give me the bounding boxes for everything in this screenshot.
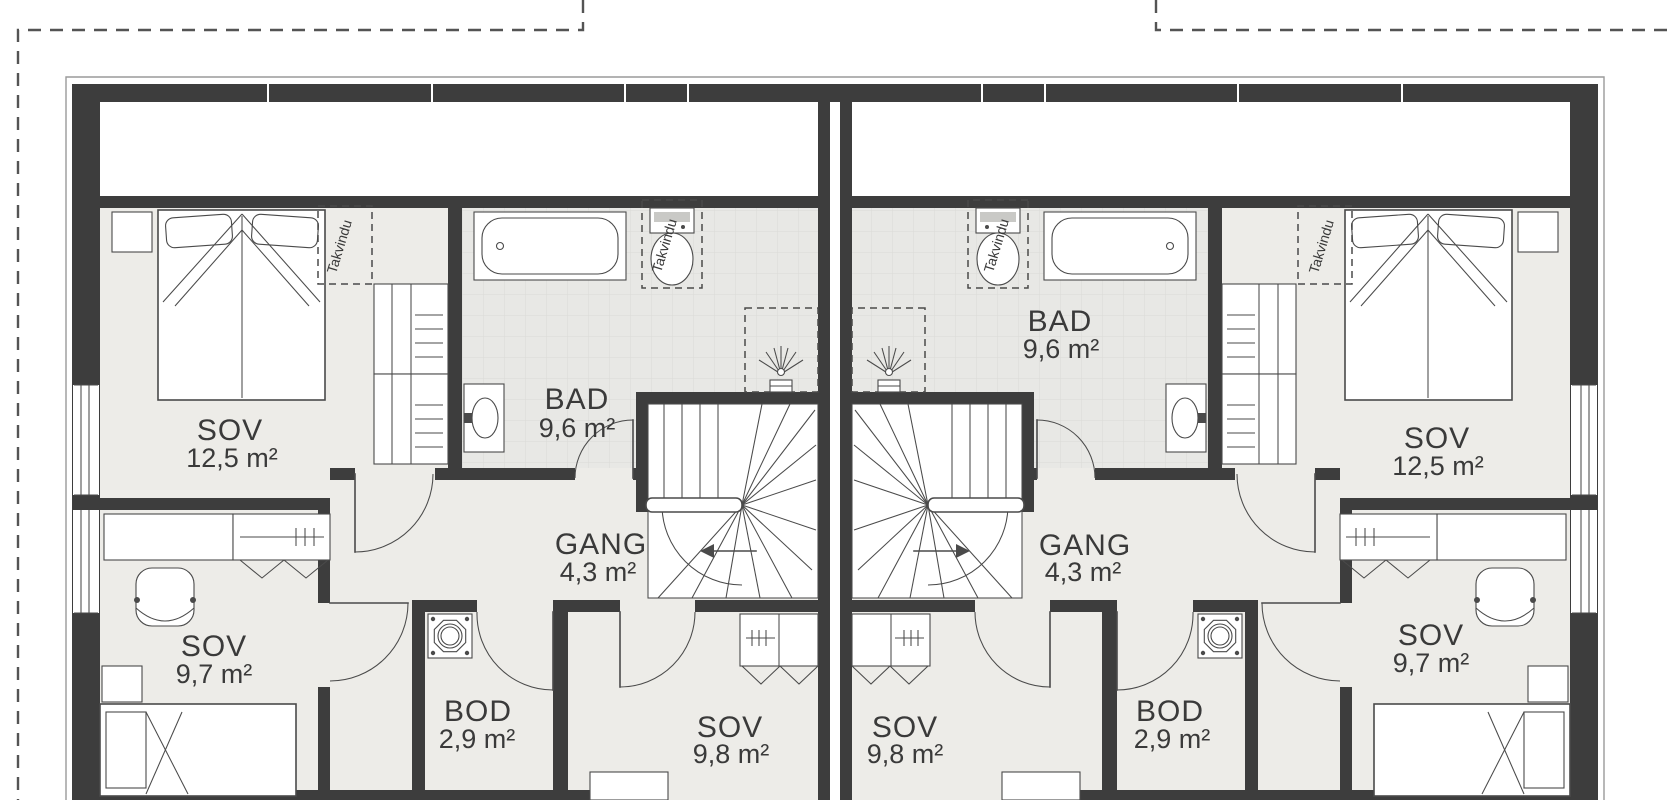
room-area-storage: 2,9 m² <box>439 724 516 754</box>
room-area-bed2: 9,7 m² <box>176 659 253 689</box>
room-area-bed3: 9,8 m² <box>693 739 770 769</box>
room-area-bath: 9,6 m² <box>1023 334 1100 364</box>
room-label-bath: BAD <box>545 383 610 416</box>
room-area-hall: 4,3 m² <box>560 557 637 587</box>
room-area-master: 12,5 m² <box>1392 451 1484 481</box>
left-unit-geometry <box>66 77 835 800</box>
room-area-storage: 2,9 m² <box>1134 724 1211 754</box>
floor-plan-page: SOV 12,5 m² BAD 9,6 m² GANG 4,3 m² SOV 9… <box>0 0 1670 800</box>
room-area-master: 12,5 m² <box>186 443 278 473</box>
room-area-bed3: 9,8 m² <box>867 739 944 769</box>
room-area-hall: 4,3 m² <box>1045 557 1122 587</box>
floor-plan-drawing: SOV 12,5 m² BAD 9,6 m² GANG 4,3 m² SOV 9… <box>0 0 1670 800</box>
room-area-bed2: 9,7 m² <box>1393 648 1470 678</box>
right-unit-geometry <box>835 77 1604 800</box>
room-area-bath: 9,6 m² <box>539 413 616 443</box>
